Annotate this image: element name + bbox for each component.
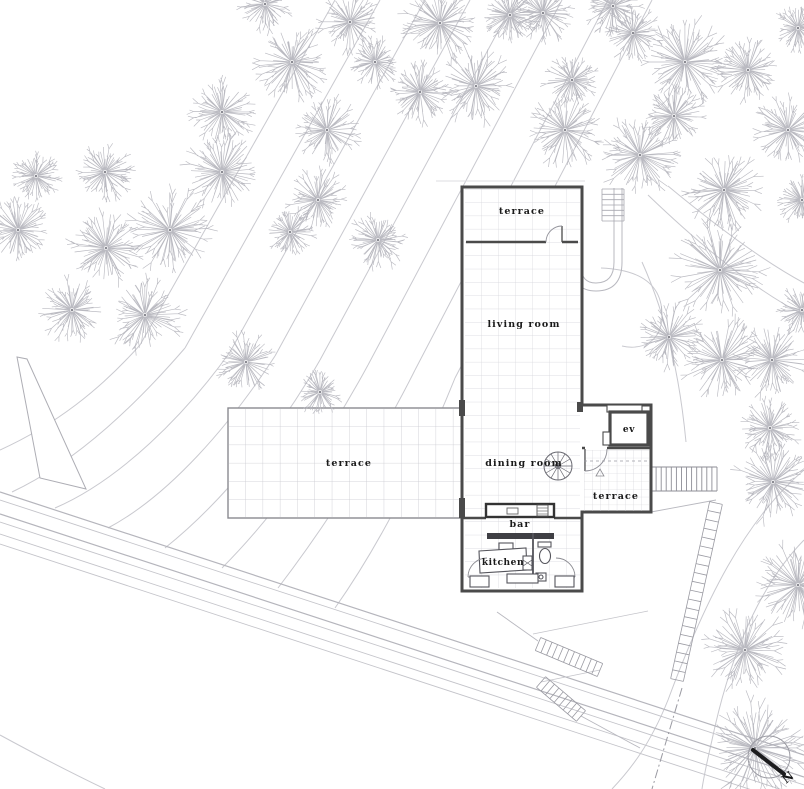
site-plan-drawing: N terrace living room dining room terrac… xyxy=(0,0,804,789)
tree xyxy=(645,84,707,148)
tree xyxy=(741,396,802,463)
tree xyxy=(125,184,218,274)
label-dining-room: dining room xyxy=(485,458,562,469)
tree xyxy=(76,143,136,202)
tree xyxy=(710,37,777,105)
tree xyxy=(681,155,763,231)
label-terrace-west: terrace xyxy=(326,458,372,469)
tree xyxy=(216,330,275,390)
upper-path-stair xyxy=(602,189,624,221)
tree xyxy=(730,437,804,526)
tree xyxy=(236,0,292,36)
bar-counter xyxy=(486,504,554,517)
tree xyxy=(397,0,475,66)
tree xyxy=(295,94,361,167)
tree xyxy=(701,608,787,692)
tree xyxy=(285,166,347,231)
tree xyxy=(530,89,604,167)
tree xyxy=(442,49,514,127)
label-bar: bar xyxy=(509,519,530,530)
tree xyxy=(65,208,143,288)
label-living-room: living room xyxy=(487,319,560,330)
tree xyxy=(776,7,804,54)
tree xyxy=(301,370,342,414)
tree xyxy=(12,151,63,202)
tree xyxy=(349,212,408,272)
site-plan-page: N terrace living room dining room terrac… xyxy=(0,0,804,789)
tree xyxy=(753,93,804,163)
label-elevator: ev xyxy=(623,425,635,435)
tree xyxy=(252,29,327,103)
tree xyxy=(180,131,256,208)
tree xyxy=(315,0,377,56)
bridge-walkway xyxy=(651,467,717,491)
tree xyxy=(732,325,804,401)
tree xyxy=(0,196,47,261)
tree xyxy=(540,57,598,108)
label-kitchen: kitchen xyxy=(482,558,524,568)
tree xyxy=(187,75,256,143)
tree xyxy=(350,36,396,90)
building-plan xyxy=(228,187,651,591)
tree xyxy=(777,173,804,223)
road xyxy=(0,492,804,789)
tree xyxy=(390,60,453,128)
tree xyxy=(110,273,188,356)
tree xyxy=(602,118,681,194)
tree xyxy=(38,274,101,343)
tree xyxy=(514,0,575,45)
label-terrace-east: terrace xyxy=(593,491,639,502)
tree xyxy=(605,7,664,63)
label-terrace-top: terrace xyxy=(499,206,545,217)
tree xyxy=(669,217,771,316)
toilet xyxy=(540,549,551,564)
tree xyxy=(755,540,804,629)
tree xyxy=(640,301,703,372)
